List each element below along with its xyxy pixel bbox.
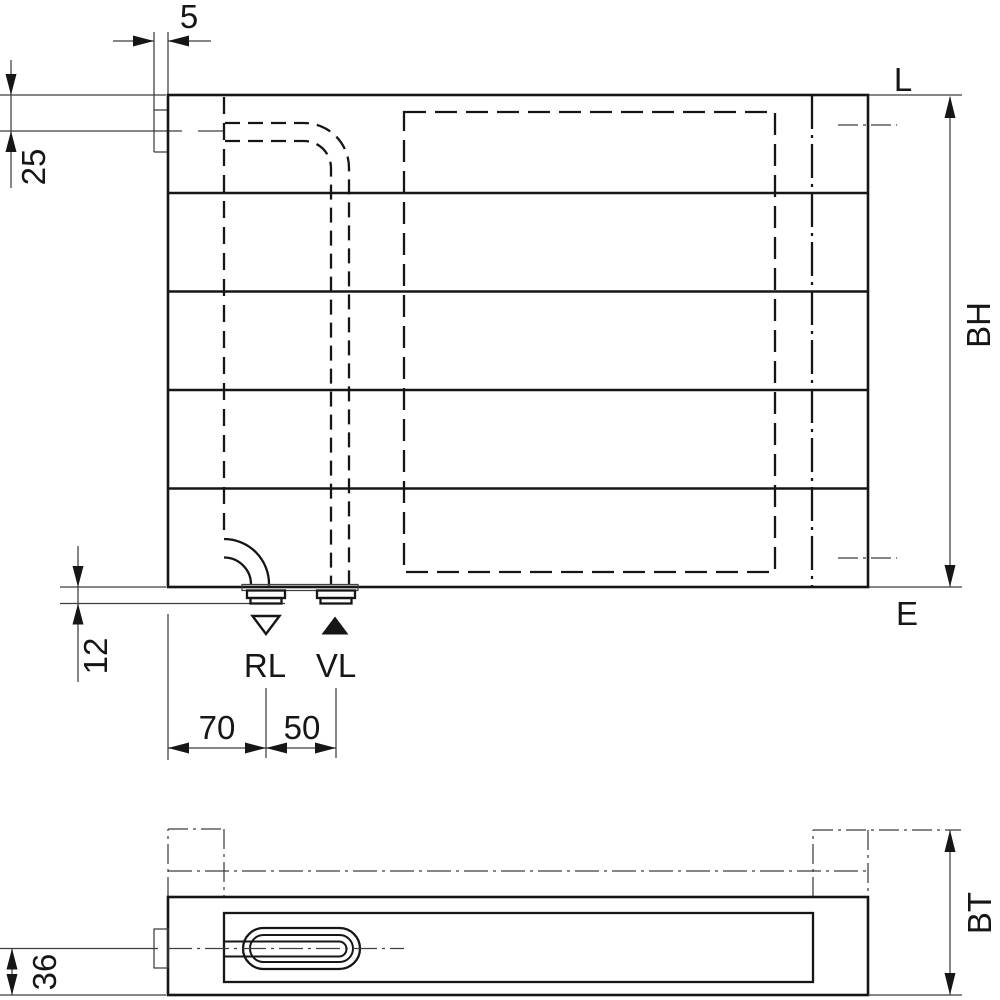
front-extension-lines	[0, 95, 962, 760]
convector-fins-top	[260, 825, 777, 899]
wall-bracket-outline	[154, 32, 168, 152]
dim-label-25: 25	[15, 149, 52, 186]
return-label: RL	[244, 647, 286, 684]
dim-label-36: 36	[26, 954, 63, 991]
phantom-bracket-right	[813, 830, 961, 897]
length-ref-label: L	[894, 61, 912, 98]
dim-label-70: 70	[199, 709, 236, 746]
front-view: 5 25 L BH E 12 RL VL 70 50	[0, 0, 997, 760]
dim-label-12: 12	[77, 638, 114, 675]
plan-view: 36 BT	[0, 825, 998, 995]
radiator-body-outline	[168, 95, 868, 587]
bottom-ref-label: E	[896, 595, 918, 632]
dim-center-36	[7, 949, 18, 996]
supply-flow-triangle-up-icon	[322, 617, 349, 635]
return-elbow	[224, 539, 269, 586]
return-flow-triangle-down-icon	[253, 616, 280, 634]
dim-depth-bt	[945, 830, 956, 995]
dim-label-50: 50	[284, 709, 321, 746]
convector-hidden-outline	[404, 112, 775, 572]
radiator-technical-drawing: 5 25 L BH E 12 RL VL 70 50	[0, 0, 1000, 1000]
dim-label-5: 5	[180, 0, 198, 35]
dim-label-bt: BT	[961, 892, 998, 934]
dim-label-bh: BH	[960, 302, 997, 348]
dim-bracket-5	[113, 36, 211, 47]
convector-fins-hidden	[404, 914, 775, 983]
phantom-bracket-left	[168, 829, 224, 897]
supply-label: VL	[316, 647, 356, 684]
panel-section-lines	[168, 193, 868, 489]
drawing-svg: 5 25 L BH E 12 RL VL 70 50	[0, 0, 1000, 1000]
dim-height-bh	[945, 96, 956, 587]
